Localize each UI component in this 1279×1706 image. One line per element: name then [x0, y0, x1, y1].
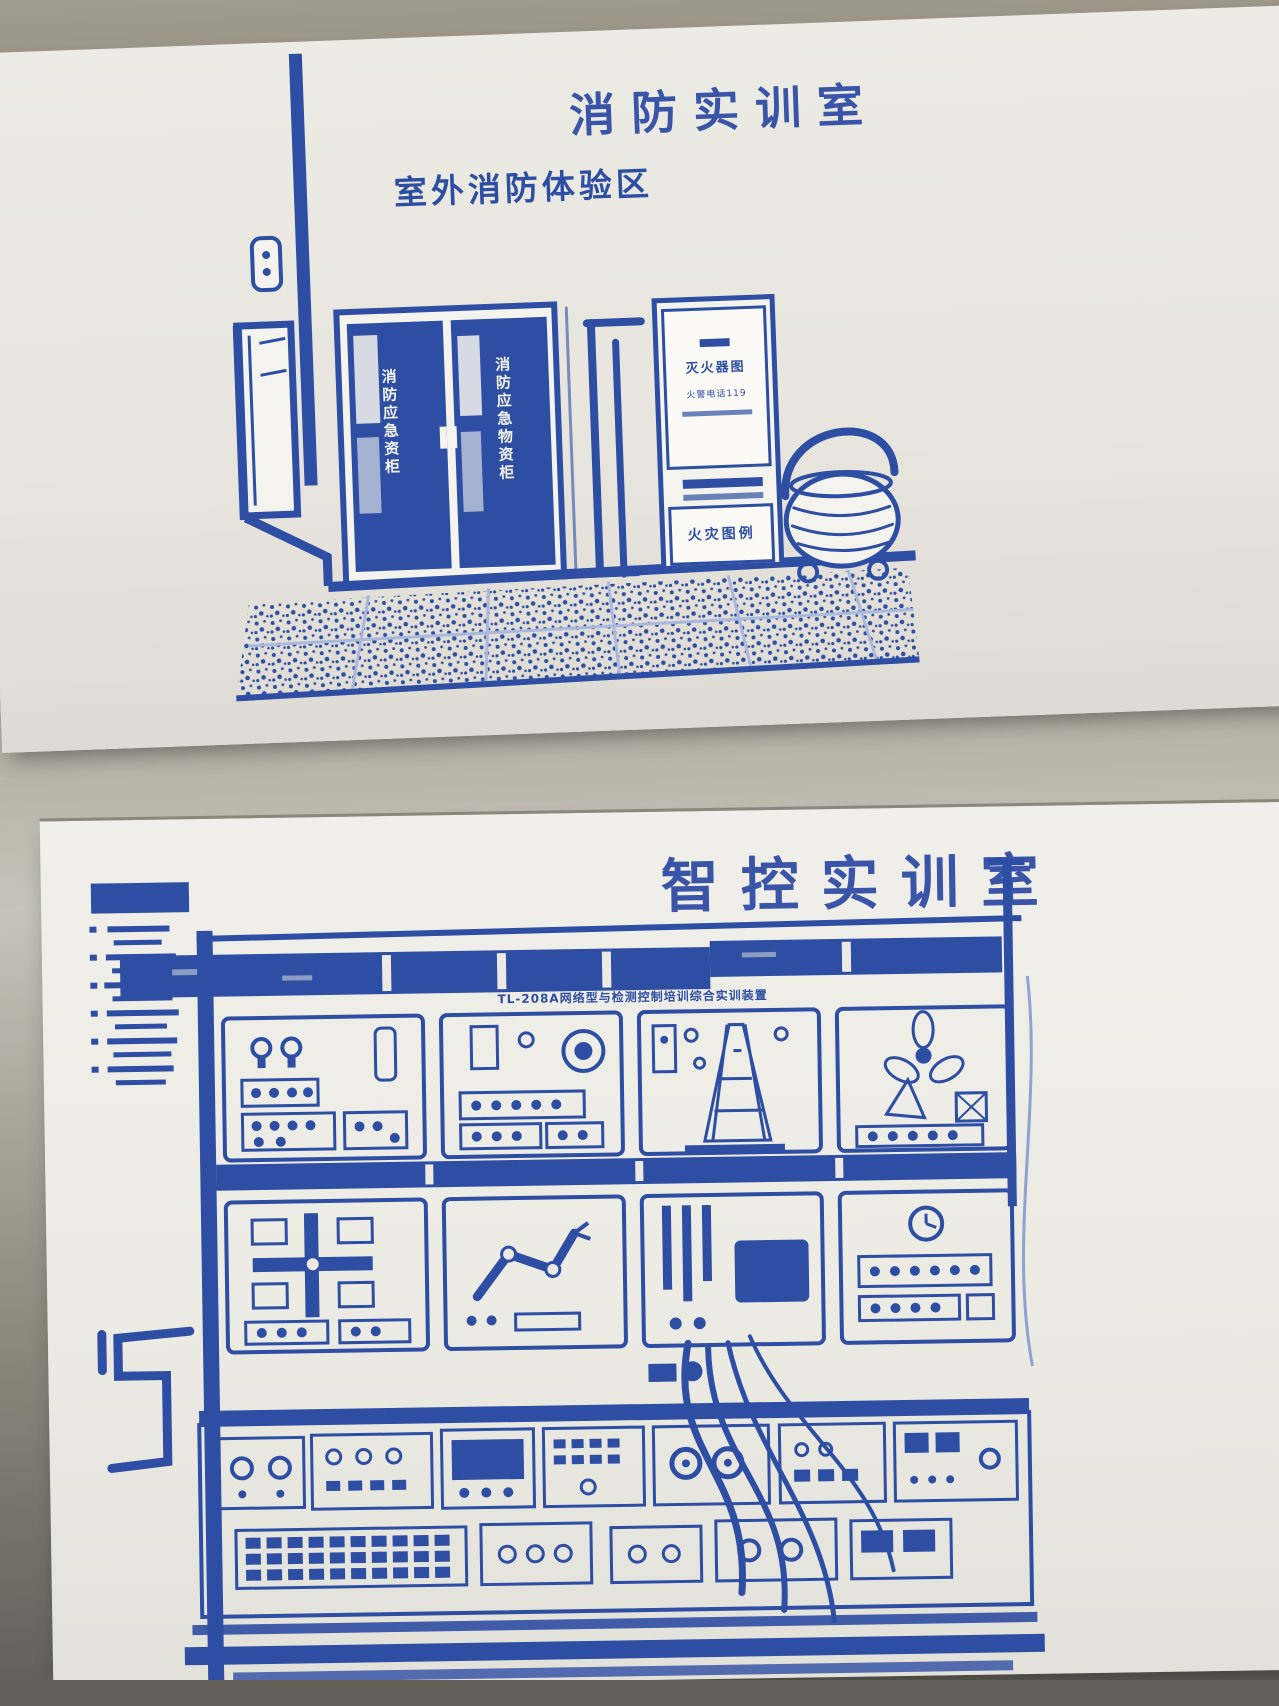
panel-row-top: [223, 1006, 1011, 1160]
table-edge: [0, 1680, 1279, 1706]
control-training-sheet: 智控实训室: [40, 799, 1279, 1690]
fire-training-sheet: 消防实训室 室外消防体验区: [0, 4, 1279, 753]
sign-top-line: 灭火器图: [664, 355, 767, 378]
panel-row-bottom: [226, 1190, 1014, 1352]
lower-sign-label: 火灾图例: [670, 522, 773, 546]
control-room-line-art: [40, 802, 1279, 1690]
console-desk: [181, 1398, 1045, 1683]
cabinet-right-label: 消防应急物资柜: [494, 356, 514, 482]
wall-bracket: [102, 1331, 192, 1468]
standpipes: [566, 305, 650, 576]
photo-background: 消防实训室 室外消防体验区: [0, 0, 1279, 1706]
cabinet-left-label: 消防应急资柜: [380, 368, 399, 476]
fire-room-line-art: [0, 4, 1279, 753]
